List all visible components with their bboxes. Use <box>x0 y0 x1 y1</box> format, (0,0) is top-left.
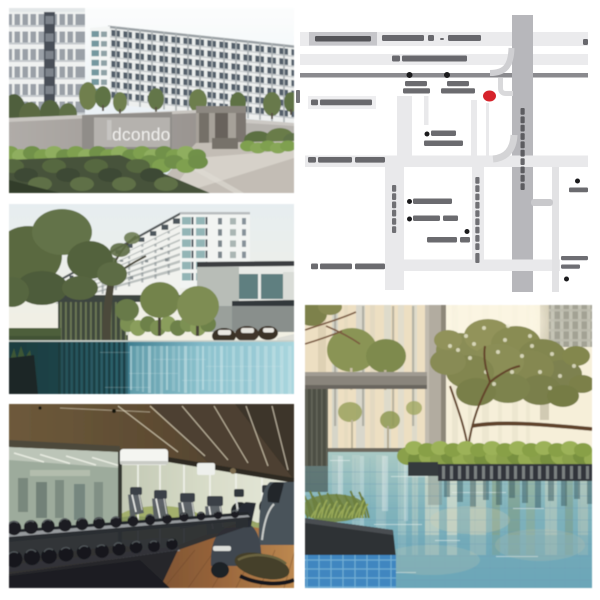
svg-text:dcondo: dcondo <box>112 125 171 145</box>
